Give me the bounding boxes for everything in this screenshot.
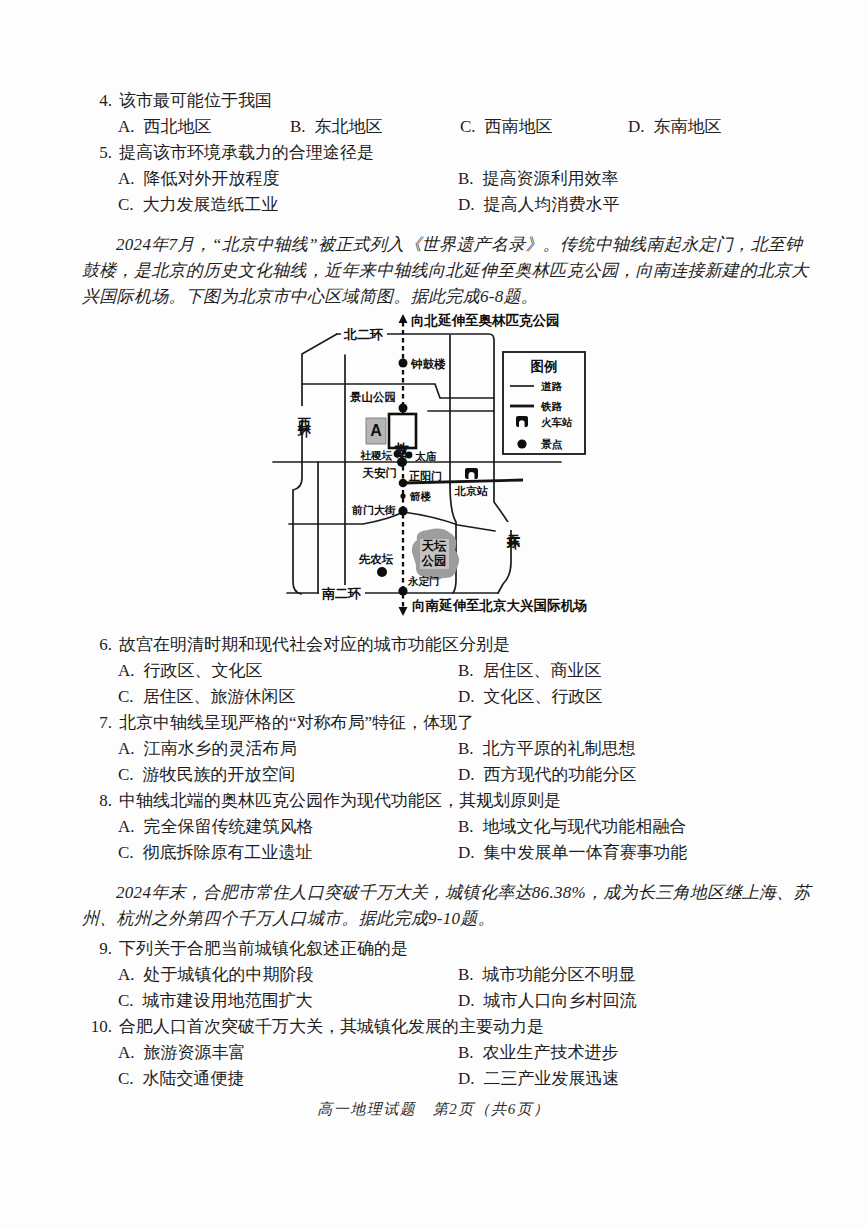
option-label: B. (458, 962, 474, 988)
passage-beijing-axis: 2024年7月，“北京中轴线”被正式列入《世界遗产名录》。传统中轴线南起永定门，… (82, 232, 817, 310)
question-stem: 4. 该市最可能位于我国 (82, 88, 817, 114)
option-b: B.居住区、商业区 (458, 658, 817, 684)
question-text: 故宫在明清时期和现代社会对应的城市功能区分别是 (119, 632, 510, 658)
option-label: A. (118, 736, 135, 762)
option-label: B. (458, 658, 474, 684)
tiananmen-label: 天安门 (362, 466, 398, 479)
legend-road-label: 道路 (540, 380, 563, 392)
option-label: B. (458, 166, 474, 192)
option-d: D.提高人均消费水平 (458, 192, 817, 218)
option-label: A. (118, 814, 135, 840)
north-arrowhead (399, 314, 408, 323)
option-label: D. (628, 114, 645, 140)
option-label: D. (458, 192, 475, 218)
south-ring-label: 南二环 (321, 586, 361, 601)
option-text: 处于城镇化的中期阶段 (144, 962, 314, 988)
option-a: A.行政区、文化区 (118, 658, 458, 684)
temple-of-heaven-line2: 公园 (420, 554, 449, 569)
option-text: 文化区、行政区 (484, 684, 603, 710)
options-row: A.降低对外开放程度 B.提高资源利用效率 C.大力发展造纸工业 D.提高人均消… (118, 166, 817, 218)
question-number: 10. (82, 1014, 112, 1040)
question-9: 9. 下列关于合肥当前城镇化叙述正确的是 A.处于城镇化的中期阶段 B.城市功能… (82, 936, 817, 1014)
option-label: B. (290, 114, 306, 140)
question-text: 北京中轴线呈现严格的“对称布局”特征，体现了 (119, 710, 474, 736)
legend-train-station-icon-door (519, 420, 525, 427)
option-d: D.集中发展单一体育赛事功能 (458, 840, 817, 866)
option-text: 居住区、商业区 (483, 658, 602, 684)
option-text: 大力发展造纸工业 (143, 192, 279, 218)
taimiao-dot (406, 452, 413, 459)
option-a: A.江南水乡的灵活布局 (118, 736, 458, 762)
option-d: D.二三产业发展迅速 (458, 1066, 817, 1092)
option-d: D.西方现代的功能分区 (458, 762, 817, 788)
options-row: A.江南水乡的灵活布局 B.北方平原的礼制思想 C.游牧民族的开放空间 D.西方… (118, 736, 817, 788)
question-text: 下列关于合肥当前城镇化叙述正确的是 (119, 936, 408, 962)
question-6: 6. 故宫在明清时期和现代社会对应的城市功能区分别是 A.行政区、文化区 B.居… (82, 632, 817, 710)
option-text: 江南水乡的灵活布局 (144, 736, 297, 762)
options-row: A.西北地区 B.东北地区 C.西南地区 D.东南地区 (118, 114, 817, 140)
option-text: 农业生产技术进步 (483, 1040, 619, 1066)
option-label: B. (458, 736, 474, 762)
east-ring-label: 东二环 (504, 522, 522, 530)
question-text: 该市最可能位于我国 (119, 88, 272, 114)
area-a-label: A (370, 422, 382, 439)
option-b: B.地域文化与现代功能相融合 (458, 814, 817, 840)
option-text: 提高资源利用效率 (483, 166, 619, 192)
temple-of-heaven-line1: 天坛 (420, 539, 449, 554)
options-row: A.处于城镇化的中期阶段 B.城市功能分区不明显 C.城市建设用地范围扩大 D.… (118, 962, 817, 1014)
option-text: 游牧民族的开放空间 (143, 762, 296, 788)
qianmen-street-dot (398, 506, 407, 515)
jingshan-park-dot (399, 404, 408, 413)
option-c: C.水陆交通便捷 (118, 1066, 458, 1092)
yongdingmen-label: 永定门 (407, 575, 440, 587)
jingshan-park-label: 景山公园 (349, 391, 396, 403)
option-label: D. (458, 840, 475, 866)
option-b: B.北方平原的礼制思想 (458, 736, 817, 762)
question-stem: 10. 合肥人口首次突破千万大关，其城镇化发展的主要动力是 (82, 1014, 817, 1040)
option-label: C. (118, 840, 134, 866)
option-label: D. (458, 1066, 475, 1092)
west-ring-label: 西二环 (295, 406, 313, 420)
zhengyangmen-label: 正阳门 (408, 470, 442, 482)
option-text: 西南地区 (485, 114, 553, 140)
option-text: 完全保留传统建筑风格 (144, 814, 314, 840)
option-text: 城市人口向乡村回流 (484, 988, 637, 1014)
option-label: C. (118, 684, 134, 710)
map-svg: 向北延伸至奥林匹克公园 向南延伸至北京大兴国际机场 北二环 南二环 钟鼓楼 景山… (265, 312, 625, 624)
legend-scenic-spot-dot (517, 439, 526, 448)
option-label: D. (458, 988, 475, 1014)
exam-page: 4. 该市最可能位于我国 A.西北地区 B.东北地区 C.西南地区 D.东南地区… (0, 0, 867, 1227)
options-row: A.旅游资源丰富 B.农业生产技术进步 C.水陆交通便捷 D.二三产业发展迅速 (118, 1040, 817, 1092)
south-arrowhead (399, 607, 408, 616)
road-west-ring-lower (293, 462, 302, 594)
jianlou-label: 箭楼 (409, 490, 432, 502)
road-upper-horizontal (302, 384, 494, 398)
option-label: A. (118, 114, 135, 140)
option-d: D.东南地区 (628, 114, 817, 140)
question-10: 10. 合肥人口首次突破千万大关，其城镇化发展的主要动力是 A.旅游资源丰富 B… (82, 1014, 817, 1092)
forbidden-city-label: 故宫 (389, 414, 416, 448)
shejitan-dot (394, 451, 401, 458)
option-label: D. (458, 684, 475, 710)
option-label: C. (460, 114, 476, 140)
option-text: 城市功能分区不明显 (483, 962, 636, 988)
option-text: 提高人均消费水平 (484, 192, 620, 218)
option-b: B.提高资源利用效率 (458, 166, 817, 192)
taimiao-label: 太庙 (414, 450, 437, 462)
option-label: B. (458, 814, 474, 840)
question-stem: 8. 中轴线北端的奥林匹克公园作为现代功能区，其规划原则是 (82, 788, 817, 814)
page-footer: 高一地理试题 第2页（共6页） (0, 1100, 867, 1119)
option-c: C.居住区、旅游休闲区 (118, 684, 458, 710)
question-text: 提高该市环境承载力的合理途径是 (119, 140, 374, 166)
option-text: 旅游资源丰富 (144, 1040, 246, 1066)
option-text: 居住区、旅游休闲区 (143, 684, 296, 710)
option-d: D.城市人口向乡村回流 (458, 988, 817, 1014)
legend-station-label: 火车站 (540, 416, 573, 428)
legend-scenic-label: 景点 (540, 438, 563, 451)
option-b: B.城市功能分区不明显 (458, 962, 817, 988)
shejitan-label: 社稷坛 (360, 449, 393, 461)
question-number: 4. (82, 88, 112, 114)
question-stem: 6. 故宫在明清时期和现代社会对应的城市功能区分别是 (82, 632, 817, 658)
option-b: B.农业生产技术进步 (458, 1040, 817, 1066)
question-number: 5. (82, 140, 112, 166)
extend-north-label: 向北延伸至奥林匹克公园 (411, 313, 560, 328)
question-text: 中轴线北端的奥林匹克公园作为现代功能区，其规划原则是 (119, 788, 561, 814)
option-c: C.彻底拆除原有工业遗址 (118, 840, 458, 866)
question-number: 6. (82, 632, 112, 658)
option-c: C.大力发展造纸工业 (118, 192, 458, 218)
option-label: C. (118, 988, 134, 1014)
legend-railway-label: 铁路 (540, 400, 563, 412)
beijing-central-axis-map: 向北延伸至奥林匹克公园 向南延伸至北京大兴国际机场 北二环 南二环 钟鼓楼 景山… (265, 312, 625, 624)
bell-drum-tower-label: 钟鼓楼 (410, 358, 446, 370)
option-c: C.游牧民族的开放空间 (118, 762, 458, 788)
question-stem: 5. 提高该市环境承载力的合理途径是 (82, 140, 817, 166)
option-label: A. (118, 962, 135, 988)
passage-hefei: 2024年末，合肥市常住人口突破千万大关，城镇化率达86.38%，成为长三角地区… (82, 880, 817, 932)
option-text: 北方平原的礼制思想 (483, 736, 636, 762)
question-text: 合肥人口首次突破千万大关，其城镇化发展的主要动力是 (119, 1014, 544, 1040)
qianmen-street-label: 前门大街 (351, 504, 396, 516)
option-text: 地域文化与现代功能相融合 (483, 814, 687, 840)
question-5: 5. 提高该市环境承载力的合理途径是 A.降低对外开放程度 B.提高资源利用效率… (82, 140, 817, 218)
option-text: 集中发展单一体育赛事功能 (484, 840, 688, 866)
option-b: B.东北地区 (290, 114, 460, 140)
option-label: C. (118, 762, 134, 788)
question-stem: 7. 北京中轴线呈现严格的“对称布局”特征，体现了 (82, 710, 817, 736)
question-4: 4. 该市最可能位于我国 A.西北地区 B.东北地区 C.西南地区 D.东南地区 (82, 88, 817, 140)
option-label: D. (458, 762, 475, 788)
option-label: C. (118, 192, 134, 218)
xiannongtan-dot (377, 567, 387, 577)
option-text: 西北地区 (144, 114, 212, 140)
option-a: A.旅游资源丰富 (118, 1040, 458, 1066)
option-text: 行政区、文化区 (144, 658, 263, 684)
question-number: 7. (82, 710, 112, 736)
option-label: B. (458, 1040, 474, 1066)
option-text: 二三产业发展迅速 (484, 1066, 620, 1092)
question-stem: 9. 下列关于合肥当前城镇化叙述正确的是 (82, 936, 817, 962)
option-label: A. (118, 1040, 135, 1066)
options-row: A.完全保留传统建筑风格 B.地域文化与现代功能相融合 C.彻底拆除原有工业遗址… (118, 814, 817, 866)
option-text: 城市建设用地范围扩大 (143, 988, 313, 1014)
beijing-station-label: 北京站 (454, 485, 488, 497)
option-text: 东北地区 (315, 114, 383, 140)
road-west-ring-upper (302, 334, 337, 462)
option-text: 东南地区 (654, 114, 722, 140)
question-number: 8. (82, 788, 112, 814)
yongdingmen-dot (398, 586, 407, 595)
xiannongtan-label: 先农坛 (358, 553, 394, 565)
zhengyangmen-dot (399, 479, 408, 488)
options-row: A.行政区、文化区 B.居住区、商业区 C.居住区、旅游休闲区 D.文化区、行政… (118, 658, 817, 710)
tiananmen-dot (397, 457, 407, 467)
option-a: A.西北地区 (118, 114, 290, 140)
option-text: 彻底拆除原有工业遗址 (143, 840, 313, 866)
option-label: C. (118, 1066, 134, 1092)
question-8: 8. 中轴线北端的奥林匹克公园作为现代功能区，其规划原则是 A.完全保留传统建筑… (82, 788, 817, 866)
beijing-station-icon-door (469, 472, 475, 479)
question-7: 7. 北京中轴线呈现严格的“对称布局”特征，体现了 A.江南水乡的灵活布局 B.… (82, 710, 817, 788)
temple-of-heaven-label: 天坛 公园 (409, 539, 459, 569)
option-text: 水陆交通便捷 (143, 1066, 245, 1092)
option-a: A.完全保留传统建筑风格 (118, 814, 458, 840)
north-ring-label: 北二环 (343, 327, 383, 342)
jianlou-dot (400, 493, 405, 498)
option-label: A. (118, 658, 135, 684)
option-c: C.西南地区 (460, 114, 628, 140)
option-label: A. (118, 166, 135, 192)
extend-south-label: 向南延伸至北京大兴国际机场 (412, 598, 588, 613)
option-text: 降低对外开放程度 (144, 166, 280, 192)
option-d: D.文化区、行政区 (458, 684, 817, 710)
legend-title: 图例 (531, 359, 558, 374)
option-a: A.处于城镇化的中期阶段 (118, 962, 458, 988)
question-number: 9. (82, 936, 112, 962)
option-a: A.降低对外开放程度 (118, 166, 458, 192)
bell-drum-tower-dot (399, 359, 408, 368)
option-c: C.城市建设用地范围扩大 (118, 988, 458, 1014)
option-text: 西方现代的功能分区 (484, 762, 637, 788)
